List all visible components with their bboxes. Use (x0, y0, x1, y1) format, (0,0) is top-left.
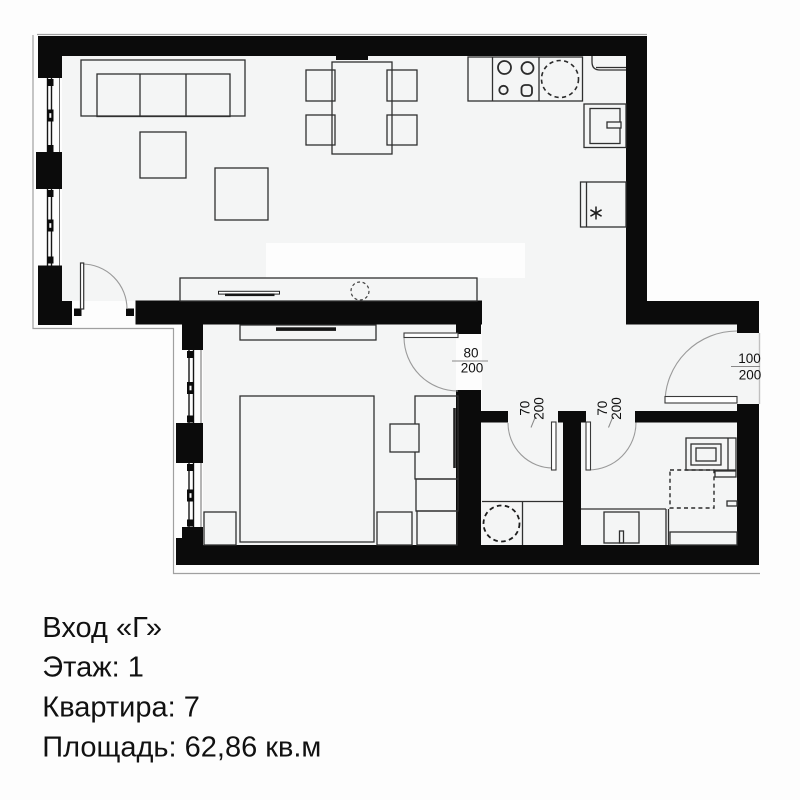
svg-text:200: 200 (609, 397, 624, 420)
svg-text:Площадь: 62,86 кв.м: Площадь: 62,86 кв.м (42, 732, 321, 764)
svg-text:200: 200 (532, 397, 547, 420)
svg-text:200: 200 (461, 361, 484, 376)
svg-text:100: 100 (738, 351, 761, 366)
svg-text:200: 200 (739, 368, 762, 383)
svg-text:Вход «Г»: Вход «Г» (42, 612, 162, 644)
svg-text:70: 70 (518, 401, 533, 416)
svg-text:Этаж: 1: Этаж: 1 (42, 652, 144, 684)
svg-text:80: 80 (463, 346, 478, 361)
svg-text:70: 70 (595, 401, 610, 416)
svg-text:Квартира: 7: Квартира: 7 (42, 692, 200, 724)
